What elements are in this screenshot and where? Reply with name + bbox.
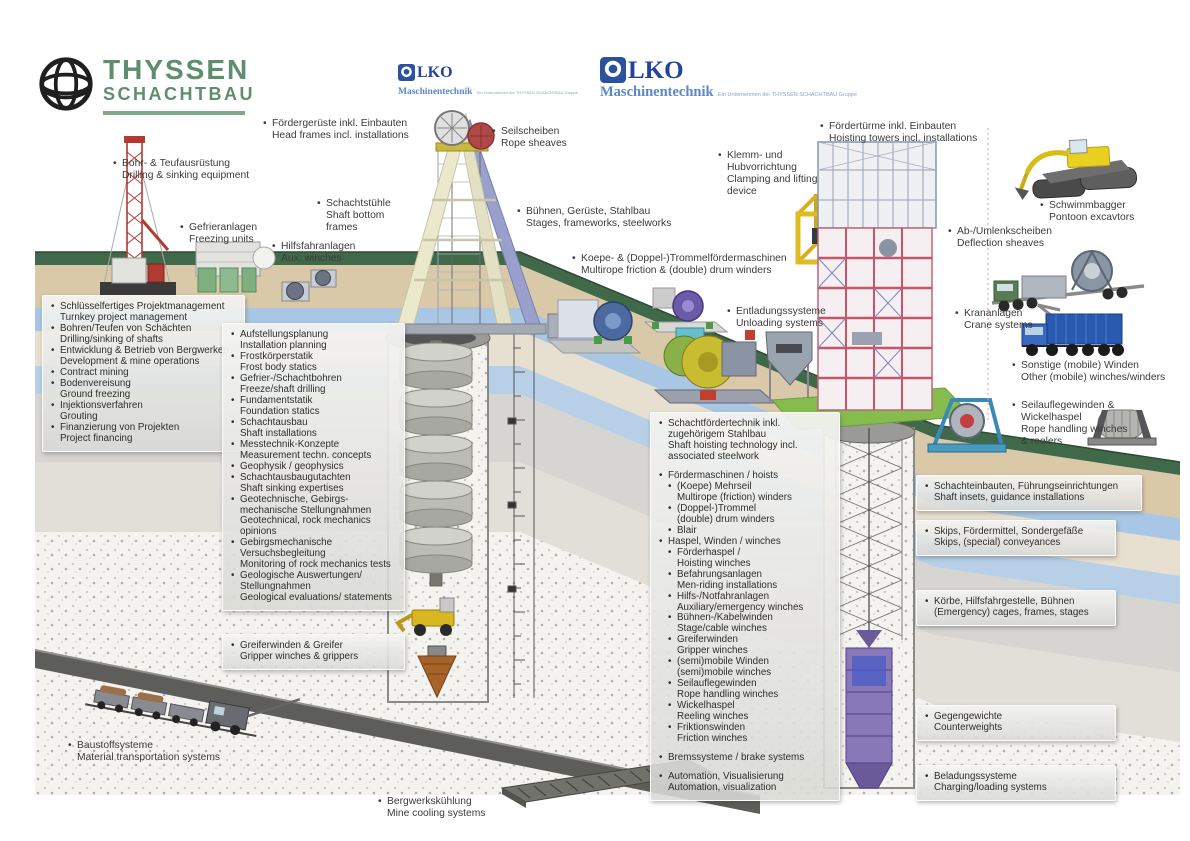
list-item: FundamentstatikFoundation statics (231, 396, 396, 418)
list-item: Schlüsselfertiges ProjektmanagementTurnk… (51, 302, 236, 324)
label-rope-handling-winches: Seilauflegewinden & WickelhaspelRope han… (1012, 400, 1130, 449)
label-crane-systems: KrananlagenCrane systems (955, 308, 1065, 332)
olko-tagline: Ein Unternehmen der THYSSEN SCHACHTBAU G… (718, 92, 857, 98)
panel-shaft-hoisting: Schachtfördertechnik inkl. zugehörigem S… (650, 412, 840, 801)
panel-gripper-winches: Greiferwinden & GreiferGripper winches &… (222, 634, 405, 670)
list-item: FriktionswindenFriction winches (668, 723, 831, 745)
list-item: Entwicklung & Betrieb von BergwerkenDeve… (51, 346, 236, 368)
list-item: Geologische Auswertungen/ Stellungnahmen… (231, 571, 396, 604)
panel-cages: Körbe, Hilfsfahrgestelle, Bühnen(Emergen… (916, 590, 1116, 626)
services-list: Schlüsselfertiges ProjektmanagementTurnk… (51, 302, 236, 445)
sheave-transport-truck-illustration (992, 251, 1144, 312)
list-item: Haspel, Winden / winches (659, 537, 831, 548)
list-item: SchachtausbaugutachtenShaft sinking expe… (231, 473, 396, 495)
label-drum-winders: Koepe- & (Doppel-)Trommelfördermaschinen… (572, 253, 832, 277)
gripper-list: Greiferwinden & GreiferGripper winches &… (231, 641, 396, 663)
sinking-stage-illustration (400, 340, 472, 586)
globe-icon (38, 56, 94, 112)
list-item: Automation, VisualisierungAutomation, vi… (659, 772, 831, 794)
label-unloading-systems: EntladungssystemeUnloading systems (727, 306, 842, 330)
cages-list: Körbe, Hilfsfahrgestelle, Bühnen(Emergen… (925, 597, 1107, 619)
list-item: InjektionsverfahrenGrouting (51, 401, 236, 423)
list-item: Körbe, Hilfsfahrgestelle, Bühnen(Emergen… (925, 597, 1107, 619)
list-item: (Koepe) MehrseilMultirope (friction) win… (668, 482, 831, 504)
panel-services: Schlüsselfertiges ProjektmanagementTurnk… (42, 295, 245, 452)
list-item: Schachteinbauten, FührungseinrichtungenS… (925, 482, 1133, 504)
pontoon-excavator-illustration (1013, 137, 1138, 200)
skips-list: Skips, Fördermittel, SondergefäßeSkips, … (925, 527, 1107, 549)
shaft-insets-list: Schachteinbauten, FührungseinrichtungenS… (925, 482, 1133, 504)
hoisting-list: Schachtfördertechnik inkl. zugehörigem S… (659, 419, 831, 794)
list-item: AufstellungsplanungInstallation planning (231, 330, 396, 352)
olko-o-icon (600, 57, 626, 83)
list-item: Bremssysteme / brake systems (659, 753, 831, 764)
label-hoisting-towers: Fördertürme inkl. EinbautenHoisting towe… (820, 121, 1020, 145)
list-item: Greiferwinden & GreiferGripper winches &… (231, 641, 396, 663)
olko-wordmark: LKO (628, 58, 684, 83)
list-item: Gebirgsmechanische VersuchsbegleitungMon… (231, 538, 396, 571)
loading-list: BeladungssystemeCharging/loading systems (925, 772, 1107, 794)
list-item: GreiferwindenGripper winches (668, 635, 831, 657)
panel-counterweights: GegengewichteCounterweights (916, 705, 1116, 741)
list-item: GegengewichteCounterweights (925, 712, 1107, 734)
list-item: SchachtausbauShaft installations (231, 418, 396, 440)
brand-name-line2: SCHACHTBAU (103, 84, 255, 105)
list-item: (Doppel-)Trommel(double) drum winders (668, 504, 831, 526)
list-item: Finanzierung von ProjektenProject financ… (51, 423, 236, 445)
label-head-frames: Fördergerüste inkl. EinbautenHead frames… (263, 118, 443, 142)
list-item: BeladungssystemeCharging/loading systems (925, 772, 1107, 794)
list-item: Messtechnik-KonzepteMeasurement techn. c… (231, 440, 396, 462)
olko-subtitle: Maschinentechnik (398, 87, 472, 97)
logo-underline (103, 111, 245, 115)
olko-tagline: Ein Unternehmen der THYSSEN SCHACHTBAU G… (477, 90, 578, 95)
list-item: Förderhaspel /Hoisting winches (668, 548, 831, 570)
olko-wordmark: LKO (417, 65, 453, 81)
panel-loading-systems: BeladungssystemeCharging/loading systems (916, 765, 1116, 801)
list-item: SeilauflegewindenRope handling winches (668, 679, 831, 701)
label-stages-frameworks: Bühnen, Gerüste, StahlbauStages, framewo… (517, 206, 707, 230)
olko-subtitle: Maschinentechnik (600, 84, 714, 100)
list-item: Bohren/Teufen von SchächtenDrilling/sink… (51, 324, 236, 346)
list-item: Geotechnische, Gebirgs- mechanische Stel… (231, 495, 396, 539)
label-aux-winches: HilfsfahranlagenAux. winches (272, 241, 382, 265)
panel-skips: Skips, Fördermittel, SondergefäßeSkips, … (916, 520, 1116, 556)
olko-o-icon (398, 64, 415, 81)
label-mobile-winches: Sonstige (mobile) WindenOther (mobile) w… (1012, 360, 1187, 384)
list-item: Geophysik / geophysics (231, 462, 396, 473)
label-clamping-device: Klemm- und HubvorrichtungClamping and li… (718, 150, 832, 199)
koepe-winder-illustration (548, 300, 640, 353)
shaft-cage-illustration (846, 630, 892, 788)
list-item: WickelhaspelReeling winches (668, 701, 831, 723)
label-shaft-bottom-frames: SchachtstühleShaft bottom frames (317, 198, 409, 234)
label-pontoon-excavators: SchwimmbaggerPontoon excavtors (1040, 200, 1160, 224)
brand-name-line1: THYSSEN (103, 56, 255, 84)
panel-shaft-insets: Schachteinbauten, FührungseinrichtungenS… (916, 475, 1142, 511)
list-item: (semi)mobile Winden(semi)mobile winches (668, 657, 831, 679)
label-material-transport: BaustoffsystemeMaterial transportation s… (68, 740, 258, 764)
thyssen-schachtbau-logo: THYSSEN SCHACHTBAU (38, 56, 255, 115)
infographic-canvas: THYSSEN SCHACHTBAU LKO Maschinentechnik … (0, 0, 1190, 841)
list-item: Skips, Fördermittel, SondergefäßeSkips, … (925, 527, 1107, 549)
label-mine-cooling: BergwerkskühlungMine cooling systems (378, 796, 528, 820)
olko-logo-large: LKO Maschinentechnik Ein Unternehmen der… (600, 57, 857, 101)
counterweights-list: GegengewichteCounterweights (925, 712, 1107, 734)
list-item: BefahrungsanlagenMen-riding installation… (668, 570, 831, 592)
label-rope-sheaves: SeilscheibenRope sheaves (492, 126, 602, 150)
label-deflection-sheaves: Ab-/UmlenkscheibenDeflection sheaves (948, 226, 1078, 250)
list-item: Bühnen-/KabelwindenStage/cable winches (668, 613, 831, 635)
panel-engineering: AufstellungsplanungInstallation planning… (222, 323, 405, 611)
list-item: FrostkörperstatikFrost body statics (231, 352, 396, 374)
list-item: Gefrier-/SchachtbohrenFreeze/shaft drill… (231, 374, 396, 396)
label-drilling-equipment: Bohr- & TeufausrüstungDrilling & sinking… (113, 158, 283, 182)
list-item: BodenvereisungGround freezing (51, 379, 236, 401)
engineering-list: AufstellungsplanungInstallation planning… (231, 330, 396, 604)
list-item: Schachtfördertechnik inkl. zugehörigem S… (659, 419, 831, 463)
list-item: Hilfs-/NotfahranlagenAuxiliary/emergency… (668, 592, 831, 614)
olko-logo-small: LKO Maschinentechnik Ein Unternehmen der… (398, 64, 578, 99)
